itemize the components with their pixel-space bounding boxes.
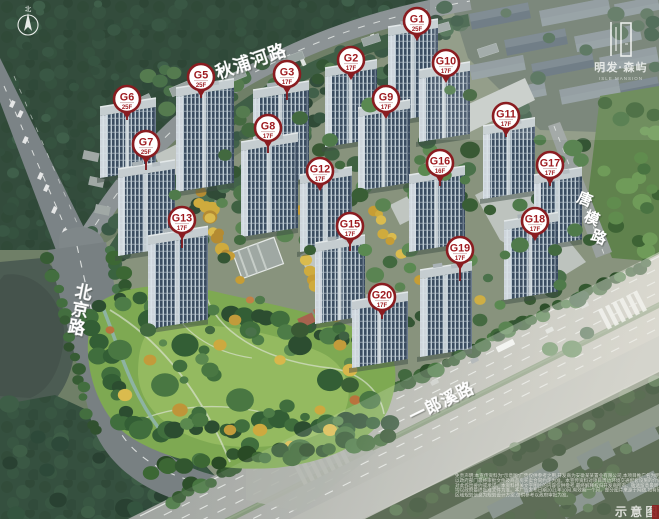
svg-text:G17: G17 bbox=[540, 157, 560, 169]
svg-text:G2: G2 bbox=[344, 52, 358, 64]
svg-text:ISLE MANSION: ISLE MANSION bbox=[599, 76, 643, 81]
svg-text:17F: 17F bbox=[315, 177, 326, 183]
svg-text:17F: 17F bbox=[530, 227, 541, 233]
svg-text:G3: G3 bbox=[280, 66, 294, 78]
svg-text:G13: G13 bbox=[172, 212, 192, 224]
svg-text:G7: G7 bbox=[139, 136, 153, 148]
svg-text:17F: 17F bbox=[441, 69, 452, 75]
svg-text:G10: G10 bbox=[436, 55, 456, 67]
svg-text:17F: 17F bbox=[346, 66, 357, 72]
svg-text:北: 北 bbox=[25, 5, 32, 13]
svg-text:G6: G6 bbox=[120, 91, 134, 103]
svg-text:G8: G8 bbox=[261, 120, 275, 132]
svg-text:25F: 25F bbox=[141, 150, 152, 156]
svg-text:17F: 17F bbox=[263, 134, 274, 140]
svg-text:17F: 17F bbox=[282, 80, 293, 86]
svg-text:G5: G5 bbox=[194, 69, 208, 81]
svg-text:G12: G12 bbox=[310, 163, 330, 175]
svg-text:17F: 17F bbox=[455, 256, 466, 262]
svg-text:G1: G1 bbox=[410, 13, 424, 25]
svg-text:G15: G15 bbox=[340, 218, 360, 230]
svg-text:17F: 17F bbox=[381, 105, 392, 111]
svg-text:区域规划信息为规划设计方案,仅供参考以政府审批为准。: 区域规划信息为规划设计方案,仅供参考以政府审批为准。 bbox=[455, 492, 571, 499]
svg-text:25F: 25F bbox=[122, 105, 133, 111]
svg-text:G16: G16 bbox=[430, 155, 450, 167]
svg-text:G9: G9 bbox=[379, 91, 393, 103]
svg-text:25F: 25F bbox=[196, 83, 207, 89]
svg-text:16F: 16F bbox=[435, 169, 446, 175]
svg-text:17F: 17F bbox=[501, 122, 512, 128]
svg-text:G11: G11 bbox=[496, 108, 516, 120]
svg-text:17F: 17F bbox=[177, 226, 188, 232]
svg-text:明发·森屿: 明发·森屿 bbox=[594, 60, 648, 74]
svg-text:G18: G18 bbox=[525, 213, 545, 225]
svg-text:17F: 17F bbox=[377, 303, 388, 309]
svg-text:G19: G19 bbox=[450, 242, 470, 254]
svg-text:G20: G20 bbox=[372, 289, 392, 301]
svg-text:17F: 17F bbox=[345, 232, 356, 238]
svg-text:25F: 25F bbox=[412, 27, 423, 33]
svg-text:17F: 17F bbox=[545, 171, 556, 177]
